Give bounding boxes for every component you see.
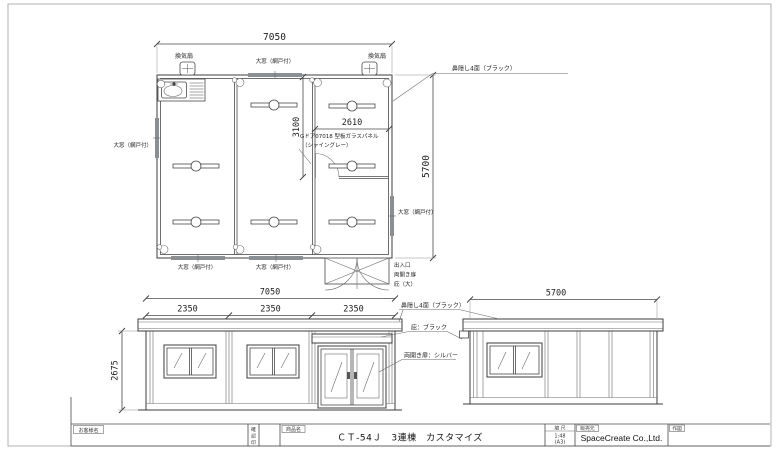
plan-dim-height: 5700	[395, 72, 436, 261]
side-canopy-end	[460, 331, 469, 338]
dim-2350-1: 2350	[177, 305, 197, 315]
dim-5700-plan: 5700	[421, 155, 432, 178]
approval-cell: 確 認 印	[251, 426, 256, 446]
drafter-label: 作図	[672, 425, 682, 432]
dim-2675: 2675	[111, 360, 121, 380]
plan-dim-room-height: 3100	[292, 74, 306, 180]
scale-label: 縮 尺	[554, 425, 565, 432]
front-canopy	[312, 334, 392, 343]
floor-plan: 7050 5700 3100 2610 換気扇 換気扇 大窓（網戸付）	[113, 32, 568, 290]
front-elevation: 7050 2350 2350 2350 2675	[111, 288, 498, 414]
label-entrance-2: 両開き扉	[394, 271, 417, 279]
vendor-cell: 販売元 SpaceCreate Co.,Ltd.	[577, 425, 663, 443]
door-handle-icon	[347, 372, 350, 379]
product-label: 商品名	[286, 426, 301, 433]
label-fascia-plan: 鼻隠し4面（ブラック）	[452, 65, 516, 73]
light-icon	[173, 161, 219, 171]
label-canopy: 庇：ブラック	[411, 324, 447, 332]
drawing-sheet: 7050 5700 3100 2610 換気扇 換気扇 大窓（網戸付）	[0, 0, 780, 450]
label-fan-right: 換気扇	[368, 52, 386, 60]
front-window-1	[164, 345, 216, 378]
dim-7050-top: 7050	[263, 32, 286, 43]
customer-cell: お客様名	[74, 426, 104, 434]
front-double-door	[318, 346, 386, 408]
approval-char: 確	[251, 426, 256, 433]
title-block: お客様名 確 認 印 商品名 ＣＴ-54Ｊ 3連棟 カスタマイズ 縮 尺 1:4…	[71, 397, 770, 446]
product-cell: 商品名 ＣＴ-54Ｊ 3連棟 カスタマイズ	[282, 426, 483, 444]
front-fascia	[138, 319, 402, 331]
side-window	[487, 343, 542, 377]
side-building	[460, 319, 664, 404]
label-glass-door-1: Gドア07018 型板ガラスパネル	[300, 132, 379, 140]
dim-2350-3: 2350	[343, 305, 363, 315]
label-window-bottom2: 大窓（網戸付）	[256, 263, 295, 271]
side-elevation: 5700	[460, 289, 664, 405]
approval-char: 印	[251, 439, 256, 446]
fan-right-icon	[362, 62, 377, 75]
label-glass-door-2: （シャイングレー）	[302, 141, 352, 149]
label-window-bottom1: 大窓（網戸付）	[178, 263, 217, 271]
light-icon	[329, 161, 375, 171]
customer-label: お客様名	[78, 427, 98, 434]
label-window-top: 大窓（網戸付）	[256, 57, 295, 65]
scale-cell: 縮 尺 1:48 (A3)	[545, 425, 575, 446]
scale-paper: (A3)	[555, 440, 566, 446]
door-handle-icon	[354, 372, 357, 379]
vendor-name: SpaceCreate Co.,Ltd.	[581, 433, 663, 443]
front-window-2	[247, 345, 299, 378]
light-icon	[329, 101, 375, 111]
approval-char: 認	[251, 433, 256, 440]
label-entrance-1: 出入口	[394, 261, 411, 269]
label-entrance-3: 庇（大）	[394, 280, 416, 288]
label-window-left: 大窓（網戸付）	[113, 141, 152, 149]
dim-7050-elev: 7050	[260, 288, 280, 298]
front-building	[138, 319, 402, 410]
fan-left-icon	[180, 62, 195, 75]
label-fan-left: 換気扇	[175, 52, 193, 60]
light-icon	[329, 217, 375, 227]
light-icon	[173, 217, 219, 227]
light-icon	[251, 217, 297, 227]
label-door-silver: 両開き扉：シルバー	[404, 352, 458, 360]
cad-drawing: 7050 5700 3100 2610 換気扇 換気扇 大窓（網戸付）	[0, 0, 780, 450]
entrance-door-icon	[325, 257, 389, 291]
sink-icon	[158, 79, 205, 101]
side-dim: 5700	[467, 289, 660, 319]
dim-2350-2: 2350	[260, 305, 280, 315]
product-name: ＣＴ-54Ｊ 3連棟 カスタマイズ	[337, 432, 483, 444]
light-icon	[251, 100, 297, 110]
side-roof	[463, 319, 663, 331]
label-fascia-elev: 鼻隠し4面（ブラック）	[401, 302, 465, 310]
vendor-label: 販売元	[580, 425, 595, 432]
dim-2610: 2610	[342, 118, 362, 128]
label-window-right: 大窓（網戸付）	[398, 208, 437, 216]
drafter-cell: 作図	[670, 425, 685, 432]
plan-dim-room-width: 2610	[312, 118, 392, 132]
elevation-labels: 鼻隠し4面（ブラック） 庇：ブラック 両開き扉：シルバー	[379, 302, 497, 373]
dim-5700-side: 5700	[546, 289, 566, 299]
